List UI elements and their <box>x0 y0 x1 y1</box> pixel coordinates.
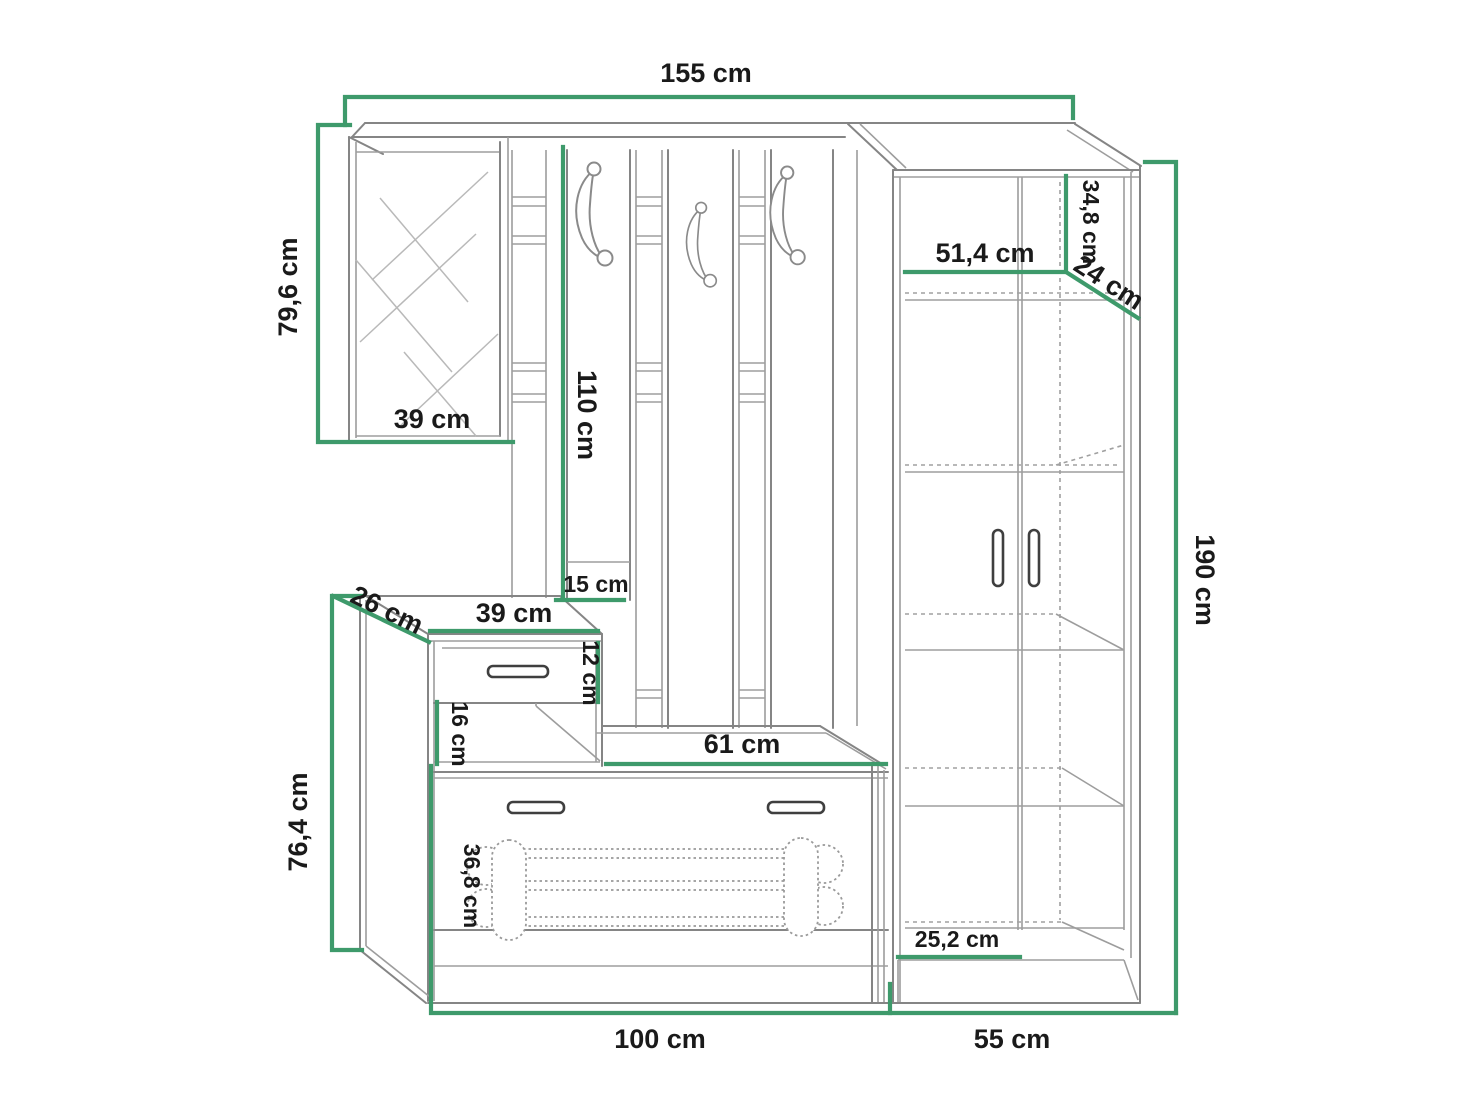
dim-label-shelf-width: 51,4 cm <box>935 238 1034 268</box>
dim-label-base-width-right: 55 cm <box>974 1024 1051 1054</box>
dim-label-total-height: 190 cm <box>1190 534 1220 626</box>
dim-label-cabinet-depth: 26 cm <box>346 580 428 641</box>
top-board <box>352 123 1075 137</box>
dim-label-lower-left-height: 76,4 cm <box>283 772 313 871</box>
dim-label-base-width-left: 100 cm <box>614 1024 706 1054</box>
shoe-cabinet-handle <box>768 802 824 813</box>
dim-line-total-height <box>1145 162 1176 1013</box>
small-cabinet <box>360 596 602 1001</box>
dim-label-cabinet-top-width: 39 cm <box>476 598 553 628</box>
dim-label-drawer-height: 12 cm <box>578 640 604 705</box>
dimension-labels: 155 cm 79,6 cm 39 cm 110 cm 15 cm 34,8 c… <box>273 58 1220 1054</box>
coat-hook-icon <box>687 202 717 286</box>
dim-label-niche-height: 16 cm <box>447 701 473 766</box>
door-handle <box>1029 530 1039 586</box>
shoe-cabinet-handle <box>508 802 564 813</box>
furniture-diagram: 155 cm 79,6 cm 39 cm 110 cm 15 cm 34,8 c… <box>0 0 1479 1109</box>
mirror-hatching <box>356 172 498 436</box>
drawer-handle <box>488 666 548 677</box>
dim-label-top-shelf-height: 34,8 cm <box>1078 180 1104 264</box>
dimension-lines <box>318 97 1176 1013</box>
coat-hook-icon <box>770 166 804 264</box>
dim-label-hook-panel-bottom: 15 cm <box>563 571 628 597</box>
shoe-rack-dotted <box>467 838 843 940</box>
dim-label-shoe-cabinet-height: 36,8 cm <box>459 844 485 928</box>
dim-line-mirror <box>318 125 513 442</box>
door-handle <box>993 530 1003 586</box>
mirror <box>349 137 508 441</box>
dim-label-hook-panel-height: 110 cm <box>572 370 602 460</box>
furniture-diagram-page: 155 cm 79,6 cm 39 cm 110 cm 15 cm 34,8 c… <box>0 0 1479 1109</box>
dim-label-top-width: 155 cm <box>660 58 752 88</box>
dim-label-plinth-shelf-width: 25,2 cm <box>915 926 999 952</box>
right-cabinet-top-face <box>848 124 1141 177</box>
coat-hook-icon <box>576 163 612 266</box>
shelves <box>905 293 1124 950</box>
shoe-cabinet <box>360 766 888 1003</box>
dim-label-bench-width: 61 cm <box>704 729 781 759</box>
dim-line-top-width <box>345 97 1073 125</box>
dim-label-mirror-height: 79,6 cm <box>273 237 303 336</box>
dim-label-mirror-width: 39 cm <box>394 404 471 434</box>
dim-line-lower-left-height <box>332 596 362 950</box>
